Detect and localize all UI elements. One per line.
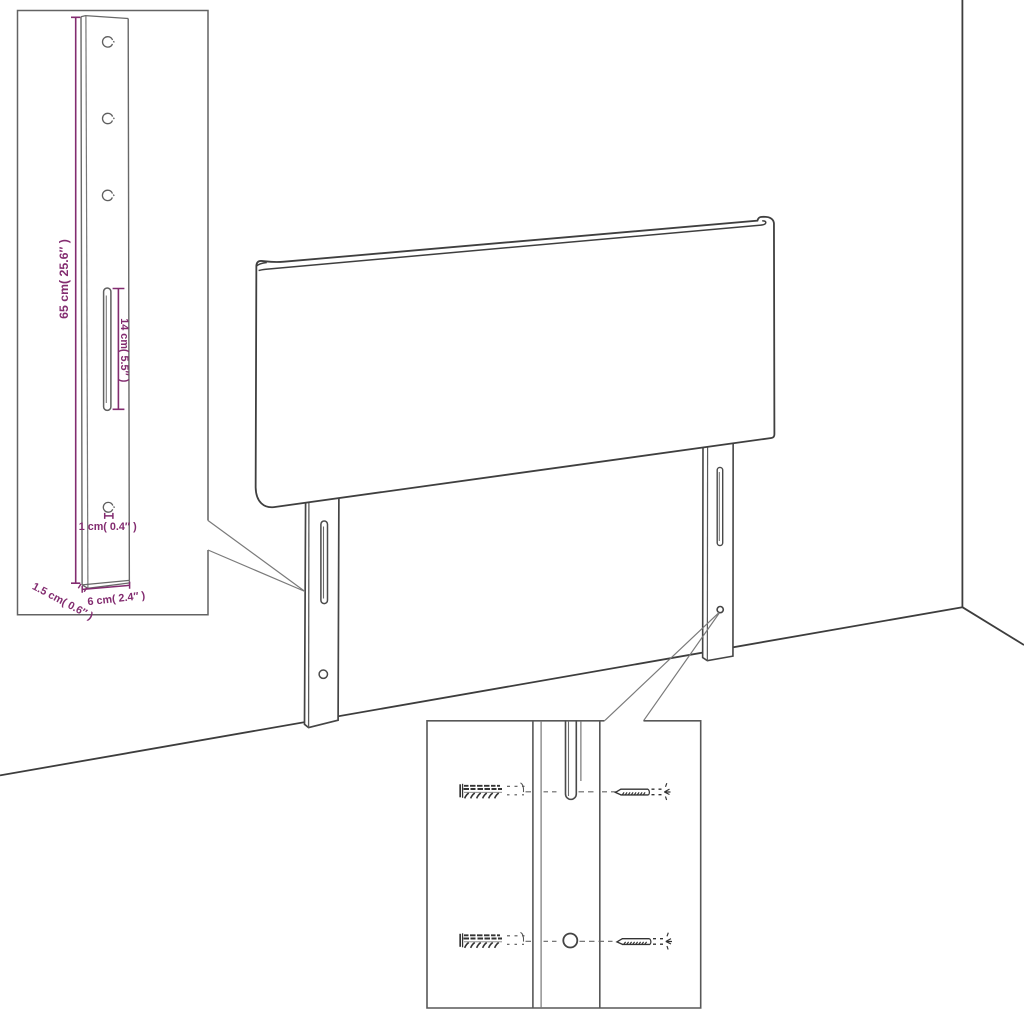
svg-text:1 cm( 0.4″ ): 1 cm( 0.4″ ) [79,521,137,533]
svg-text:14 cm( 5.5″ ): 14 cm( 5.5″ ) [118,318,130,382]
svg-text:65 cm( 25.6″ ): 65 cm( 25.6″ ) [57,239,71,319]
